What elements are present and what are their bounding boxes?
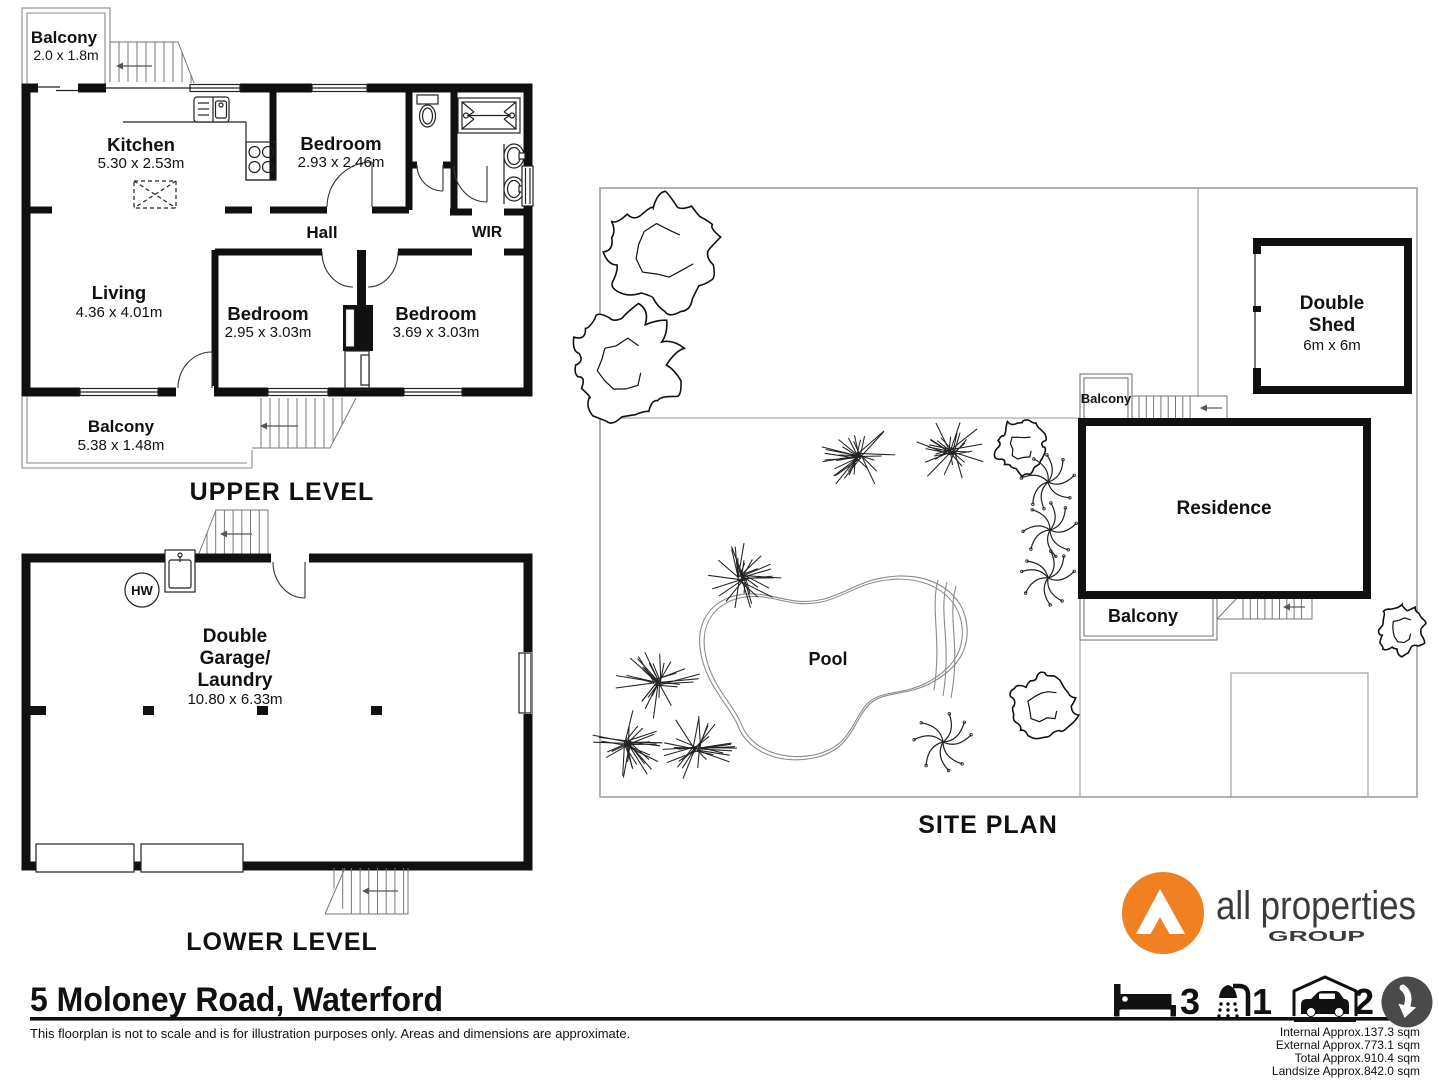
page-title: 5 Moloney Road, Waterford bbox=[30, 981, 443, 1019]
lower-top-stairs bbox=[198, 510, 268, 556]
bed-icon bbox=[1114, 984, 1176, 1017]
compass-north-icon bbox=[1382, 977, 1433, 1028]
laundry-tub-icon bbox=[165, 550, 195, 592]
site-plan: Double Shed 6m x 6m Balcony Residence Ba… bbox=[573, 188, 1425, 839]
hall-label: Hall bbox=[306, 223, 337, 242]
balcony-top-dims: 2.0 x 1.8m bbox=[33, 47, 98, 63]
bedroom3-dims: 3.69 x 3.03m bbox=[393, 324, 480, 341]
kitchen-label: Kitchen bbox=[107, 134, 175, 155]
brand-logo: all properties GROUP bbox=[1122, 872, 1416, 954]
baths-count: 1 bbox=[1252, 981, 1272, 1022]
site-upper-stairs bbox=[1132, 396, 1227, 420]
footer-rule bbox=[30, 1017, 1411, 1021]
site-balcony-upper-label: Balcony bbox=[1081, 391, 1132, 406]
shed-label-2: Shed bbox=[1309, 315, 1355, 336]
beds-count: 3 bbox=[1180, 981, 1200, 1022]
bedroom2-label: Bedroom bbox=[227, 303, 308, 324]
living-label: Living bbox=[92, 282, 146, 303]
balcony-main-dims: 5.38 x 1.48m bbox=[78, 437, 165, 454]
floorplan-canvas: Balcony 2.0 x 1.8m Kitchen 5.30 x 2.53m … bbox=[0, 0, 1439, 1080]
floorplan-page: Balcony 2.0 x 1.8m Kitchen 5.30 x 2.53m … bbox=[0, 0, 1439, 1080]
area-internal: Internal Approx.137.3 sqm bbox=[1280, 1025, 1420, 1039]
bedroom3-label: Bedroom bbox=[395, 303, 476, 324]
upper-bottom-stairs bbox=[252, 398, 356, 448]
site-pad-outline bbox=[1231, 673, 1368, 797]
bedroom2-dims: 2.95 x 3.03m bbox=[225, 324, 312, 341]
shed-label-1: Double bbox=[1300, 293, 1364, 314]
brand-group: GROUP bbox=[1268, 929, 1366, 945]
upper-level-heading: UPPER LEVEL bbox=[190, 478, 375, 506]
lower-level-heading: LOWER LEVEL bbox=[186, 928, 378, 956]
shed-dims: 6m x 6m bbox=[1303, 337, 1361, 354]
area-external: External Approx.773.1 sqm bbox=[1276, 1038, 1420, 1052]
upper-top-stairs bbox=[110, 42, 196, 88]
disclaimer-text: This floorplan is not to scale and is fo… bbox=[30, 1026, 630, 1041]
garage-dims: 10.80 x 6.33m bbox=[187, 691, 282, 708]
car-garage-icon bbox=[1294, 977, 1356, 1022]
bedroom1-label: Bedroom bbox=[300, 133, 381, 154]
lower-bottom-stairs bbox=[325, 868, 408, 914]
area-total: Total Approx.910.4 sqm bbox=[1295, 1051, 1420, 1065]
wir-label: WIR bbox=[472, 224, 502, 241]
pool-label: Pool bbox=[809, 649, 848, 669]
garage-door-2 bbox=[141, 844, 243, 872]
area-landsize: Landsize Approx.842.0 sqm bbox=[1272, 1064, 1420, 1078]
garage-label-2: Garage/ bbox=[200, 648, 271, 669]
brand-name: all properties bbox=[1216, 884, 1416, 928]
shower-fixture bbox=[458, 98, 520, 133]
shower-icon bbox=[1217, 985, 1248, 1018]
upper-level-plan: Balcony 2.0 x 1.8m Kitchen 5.30 x 2.53m … bbox=[22, 8, 533, 506]
footer: 5 Moloney Road, Waterford This floorplan… bbox=[30, 977, 1433, 1079]
kitchen-dims: 5.30 x 2.53m bbox=[98, 155, 185, 172]
residence-label: Residence bbox=[1176, 498, 1271, 519]
garage-label-1: Double bbox=[203, 626, 267, 647]
garage-door-1 bbox=[36, 844, 134, 872]
site-plan-heading: SITE PLAN bbox=[918, 811, 1058, 839]
lower-outer-walls bbox=[26, 558, 528, 866]
site-balcony-lower-label: Balcony bbox=[1108, 606, 1178, 626]
balcony-top-label: Balcony bbox=[31, 28, 98, 47]
garage-label-3: Laundry bbox=[198, 670, 273, 691]
living-dims: 4.36 x 4.01m bbox=[76, 304, 163, 321]
hw-label: HW bbox=[131, 583, 153, 598]
balcony-main-label: Balcony bbox=[88, 417, 155, 436]
lower-level-plan: HW Double Garage/ Laundry 10.80 x 6.33m … bbox=[26, 510, 532, 956]
cars-count: 2 bbox=[1354, 981, 1374, 1022]
bedroom1-dims: 2.93 x 2.46m bbox=[298, 154, 385, 171]
